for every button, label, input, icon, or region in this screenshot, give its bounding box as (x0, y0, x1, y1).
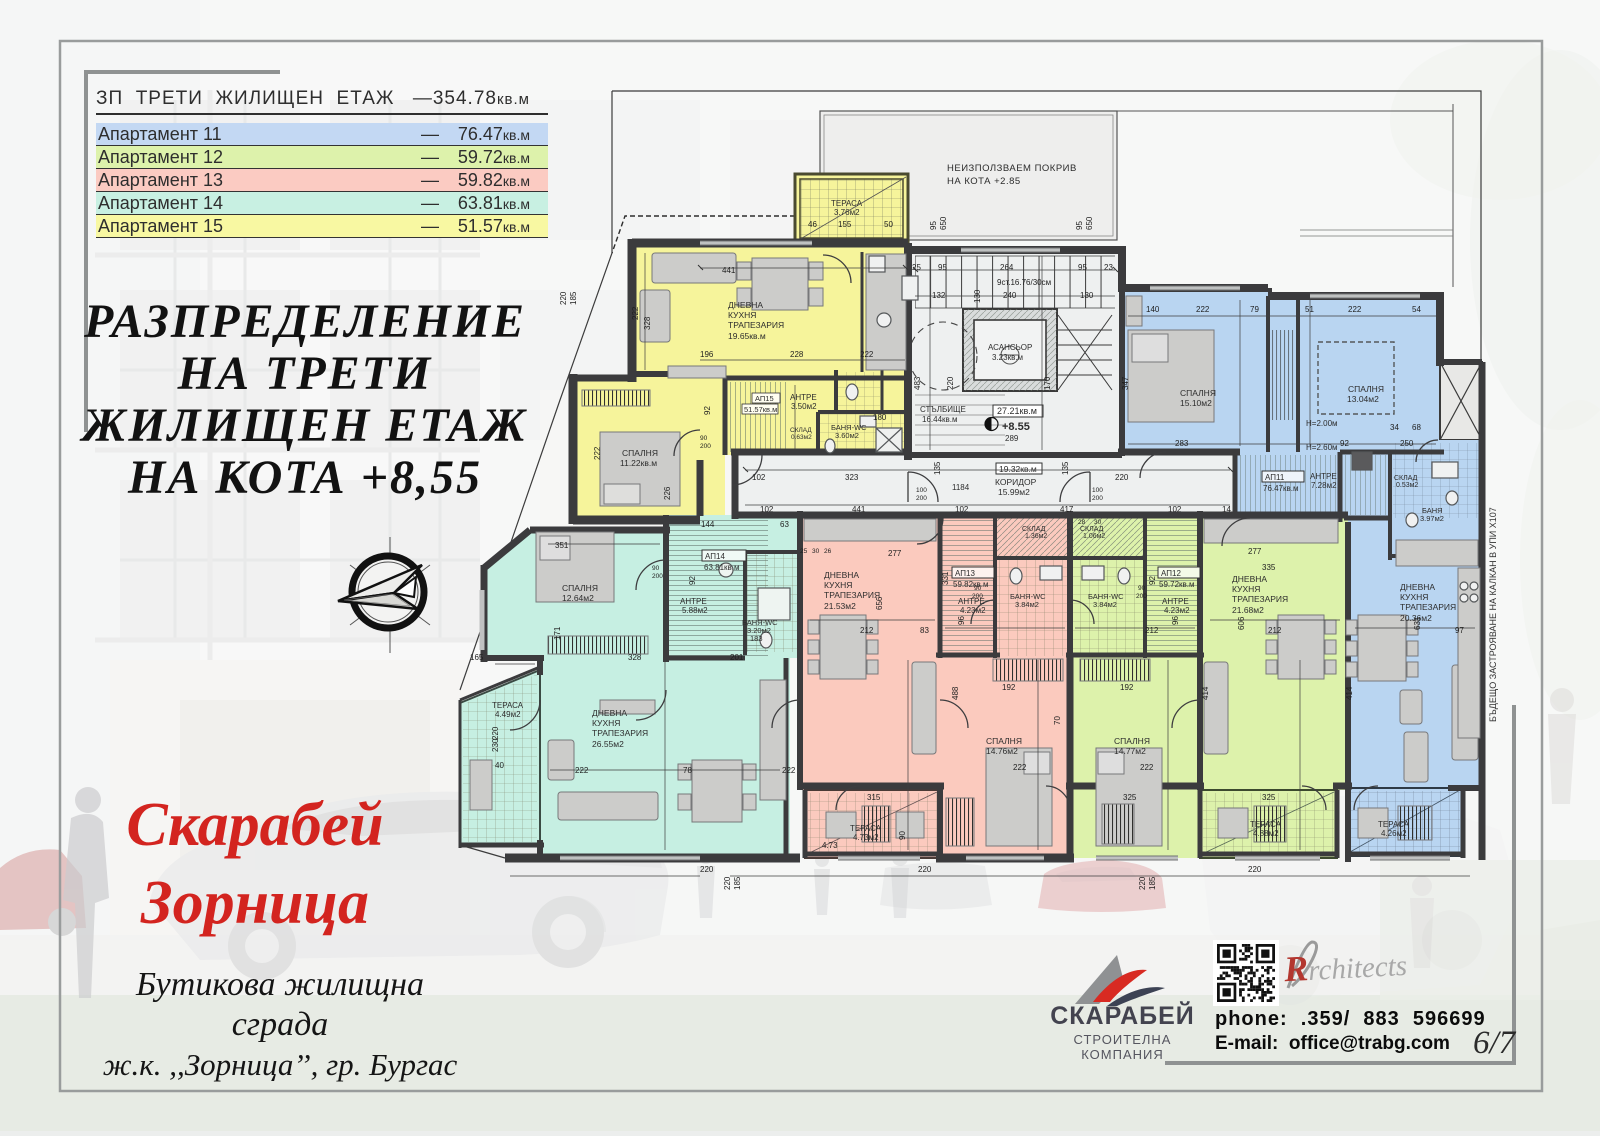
svg-text:АНТРЕ: АНТРЕ (790, 393, 817, 402)
svg-text:СПАЛНЯ: СПАЛНЯ (1180, 388, 1216, 398)
svg-text:ТРАПЕЗАРИЯ: ТРАПЕЗАРИЯ (824, 590, 880, 600)
svg-text:АНТРЕ: АНТРЕ (1310, 472, 1337, 481)
svg-text:325: 325 (1123, 793, 1137, 802)
svg-text:68: 68 (1412, 423, 1421, 432)
svg-text:АП15: АП15 (755, 394, 774, 403)
svg-text:1.36м2: 1.36м2 (1025, 533, 1047, 540)
svg-text:90: 90 (1138, 585, 1146, 592)
svg-text:АСАНСЬОР: АСАНСЬОР (988, 343, 1032, 352)
svg-text:46: 46 (808, 220, 817, 229)
svg-text:ДНЕВНА: ДНЕВНА (1400, 582, 1435, 592)
svg-text:4.73: 4.73 (822, 841, 838, 850)
svg-text:414: 414 (1201, 686, 1210, 700)
svg-text:СКЛАД: СКЛАД (1022, 526, 1046, 533)
svg-text:200: 200 (916, 495, 927, 502)
svg-text:50: 50 (884, 220, 893, 229)
svg-text:21.53м2: 21.53м2 (824, 601, 856, 611)
svg-text:+8.55: +8.55 (1002, 421, 1030, 433)
svg-text:H=2.00м: H=2.00м (1306, 419, 1338, 428)
svg-text:БЪДЕЩО ЗАСТРОЯВАНЕ НА КАЛКАН В: БЪДЕЩО ЗАСТРОЯВАНЕ НА КАЛКАН В УПИ X107 (1488, 507, 1498, 722)
svg-text:222: 222 (575, 766, 589, 775)
svg-text:1184: 1184 (952, 483, 970, 492)
svg-text:328: 328 (628, 653, 642, 662)
svg-text:100: 100 (916, 487, 927, 494)
svg-text:289: 289 (1005, 434, 1019, 443)
svg-text:220: 220 (918, 865, 932, 874)
svg-text:15.99м2: 15.99м2 (998, 487, 1030, 497)
svg-text:222: 222 (782, 766, 796, 775)
svg-text:КУХНЯ: КУХНЯ (592, 718, 620, 728)
svg-text:СТЪЛБИЩЕ: СТЪЛБИЩЕ (920, 405, 966, 414)
svg-text:3.84м2: 3.84м2 (1015, 600, 1039, 609)
svg-text:ТРАПЕЗАРИЯ: ТРАПЕЗАРИЯ (1400, 602, 1456, 612)
svg-text:102: 102 (1168, 505, 1182, 514)
svg-text:220: 220 (1248, 865, 1262, 874)
svg-text:347: 347 (1121, 376, 1130, 390)
svg-text:СПАЛНЯ: СПАЛНЯ (622, 448, 658, 458)
svg-text:171: 171 (553, 626, 562, 640)
svg-text:222: 222 (860, 350, 874, 359)
svg-text:ТЕРАСА: ТЕРАСА (492, 701, 524, 710)
svg-text:СПАЛНЯ: СПАЛНЯ (986, 736, 1022, 746)
svg-text:14.77м2: 14.77м2 (1114, 746, 1146, 756)
svg-text:92: 92 (703, 406, 712, 415)
svg-text:226: 226 (663, 486, 672, 500)
svg-text:222: 222 (1013, 763, 1027, 772)
svg-text:132: 132 (932, 291, 946, 300)
svg-text:222: 222 (593, 446, 602, 460)
svg-text:ТЕРАСА: ТЕРАСА (850, 824, 882, 833)
svg-text:325: 325 (1262, 793, 1276, 802)
svg-text:441: 441 (852, 505, 866, 514)
svg-text:185: 185 (569, 291, 578, 305)
svg-text:59.72кв.м: 59.72кв.м (1159, 580, 1195, 589)
svg-text:СКЛАД: СКЛАД (1080, 526, 1104, 533)
svg-text:76.47кв.м: 76.47кв.м (1263, 484, 1299, 493)
svg-text:1.06м2: 1.06м2 (1083, 533, 1105, 540)
svg-text:НЕИЗПОЛЗВАЕМ ПОКРИВ: НЕИЗПОЛЗВАЕМ ПОКРИВ (947, 163, 1077, 174)
svg-text:222: 222 (1196, 305, 1210, 314)
svg-text:220: 220 (491, 726, 500, 740)
svg-text:40: 40 (495, 761, 504, 770)
svg-text:650: 650 (1085, 216, 1094, 230)
svg-text:222: 222 (631, 306, 640, 320)
svg-text:488: 488 (951, 686, 960, 700)
svg-text:144: 144 (701, 520, 715, 529)
svg-text:КОРИДОР: КОРИДОР (995, 477, 1037, 487)
svg-text:92: 92 (1340, 439, 1349, 448)
svg-text:96: 96 (1171, 616, 1180, 625)
svg-text:СПАЛНЯ: СПАЛНЯ (562, 583, 598, 593)
svg-text:220: 220 (1138, 876, 1147, 890)
svg-text:27.21кв.м: 27.21кв.м (997, 406, 1037, 416)
svg-text:185: 185 (1148, 876, 1157, 890)
svg-text:26.55м2: 26.55м2 (592, 739, 624, 749)
svg-text:51: 51 (1305, 305, 1314, 314)
svg-text:220: 220 (723, 876, 732, 890)
svg-text:ТРАПЕЗАРИЯ: ТРАПЕЗАРИЯ (728, 320, 784, 330)
svg-text:79: 79 (1250, 305, 1259, 314)
svg-text:220: 220 (700, 865, 714, 874)
svg-text:140: 140 (1146, 305, 1160, 314)
svg-text:417: 417 (1060, 505, 1074, 514)
svg-text:83: 83 (920, 626, 929, 635)
svg-text:ДНЕВНА: ДНЕВНА (728, 300, 763, 310)
svg-text:30: 30 (1094, 519, 1102, 526)
svg-text:ДНЕВНА: ДНЕВНА (1232, 574, 1267, 584)
svg-text:4.73м2: 4.73м2 (853, 833, 879, 842)
svg-text:3.84м2: 3.84м2 (1093, 600, 1117, 609)
svg-text:30: 30 (812, 548, 820, 555)
svg-text:28: 28 (1078, 519, 1086, 526)
svg-text:4.26м2: 4.26м2 (1381, 829, 1407, 838)
svg-text:220: 220 (946, 376, 955, 390)
svg-text:15.10м2: 15.10м2 (1180, 398, 1212, 408)
svg-text:5.88м2: 5.88м2 (682, 606, 708, 615)
svg-text:201: 201 (730, 653, 744, 662)
svg-text:АП11: АП11 (1265, 473, 1285, 482)
svg-text:23: 23 (1104, 263, 1113, 272)
svg-text:25: 25 (800, 548, 808, 555)
svg-text:95: 95 (1078, 263, 1087, 272)
svg-text:230: 230 (491, 738, 500, 752)
svg-text:264: 264 (1000, 263, 1014, 272)
svg-text:102: 102 (752, 473, 766, 482)
svg-text:4.49м2: 4.49м2 (495, 710, 521, 719)
svg-text:212: 212 (1145, 626, 1159, 635)
svg-text:220: 220 (559, 291, 568, 305)
svg-text:90: 90 (700, 435, 708, 442)
svg-text:14.76м2: 14.76м2 (986, 746, 1018, 756)
svg-text:96: 96 (957, 616, 966, 625)
svg-text:283: 283 (1175, 439, 1189, 448)
svg-text:185: 185 (733, 876, 742, 890)
svg-text:63: 63 (780, 520, 789, 529)
svg-text:200: 200 (1092, 495, 1103, 502)
svg-text:26: 26 (824, 548, 832, 555)
svg-text:90: 90 (898, 831, 907, 840)
svg-text:656: 656 (875, 596, 884, 610)
svg-text:200: 200 (1136, 593, 1147, 600)
svg-text:ТРАПЕЗАРИЯ: ТРАПЕЗАРИЯ (1232, 594, 1288, 604)
svg-text:222: 222 (1140, 763, 1154, 772)
svg-text:351: 351 (555, 541, 569, 550)
svg-text:135: 135 (1061, 461, 1070, 475)
svg-text:4.23м2: 4.23м2 (960, 606, 986, 615)
svg-text:9ст.16.76/30см: 9ст.16.76/30см (997, 278, 1051, 287)
svg-text:11.22кв.м: 11.22кв.м (620, 458, 657, 468)
svg-text:ТЕРАСА: ТЕРАСА (831, 199, 863, 208)
svg-text:АП13: АП13 (955, 569, 975, 578)
svg-text:335: 335 (1262, 563, 1276, 572)
svg-text:КУХНЯ: КУХНЯ (728, 310, 756, 320)
svg-text:250: 250 (1400, 439, 1414, 448)
svg-text:54: 54 (1412, 305, 1421, 314)
svg-text:ТЕРАСА: ТЕРАСА (1250, 820, 1282, 829)
svg-text:63.81кв.м: 63.81кв.м (704, 563, 740, 572)
svg-text:АП12: АП12 (1161, 569, 1181, 578)
svg-text:90: 90 (974, 585, 982, 592)
svg-text:135: 135 (933, 461, 942, 475)
svg-text:483: 483 (913, 376, 922, 390)
svg-text:100: 100 (1092, 487, 1103, 494)
svg-text:0.53м2: 0.53м2 (1396, 482, 1418, 489)
svg-text:4.23м2: 4.23м2 (1164, 606, 1190, 615)
svg-text:441: 441 (722, 266, 736, 275)
svg-text:97: 97 (1455, 626, 1464, 635)
svg-text:102: 102 (760, 505, 774, 514)
svg-text:51.57кв.м: 51.57кв.м (744, 405, 777, 414)
svg-text:14: 14 (1222, 505, 1231, 514)
svg-text:130: 130 (973, 289, 982, 303)
svg-text:78: 78 (683, 766, 692, 775)
svg-text:212: 212 (1268, 626, 1282, 635)
svg-text:323: 323 (845, 473, 859, 482)
svg-text:90: 90 (652, 565, 660, 572)
svg-text:228: 228 (790, 350, 804, 359)
svg-text:СКЛАД: СКЛАД (790, 427, 812, 434)
svg-text:СПАЛНЯ: СПАЛНЯ (1114, 736, 1150, 746)
svg-text:315: 315 (867, 793, 881, 802)
svg-text:414: 414 (1345, 686, 1354, 700)
svg-text:200: 200 (700, 443, 711, 450)
svg-text:0.63м2: 0.63м2 (791, 434, 812, 441)
svg-text:34: 34 (1390, 423, 1399, 432)
svg-text:192: 192 (1002, 683, 1016, 692)
svg-text:16.44кв.м: 16.44кв.м (922, 415, 958, 424)
svg-text:192: 192 (1120, 683, 1134, 692)
svg-text:21.68м2: 21.68м2 (1232, 605, 1264, 615)
svg-text:328: 328 (643, 316, 652, 330)
svg-text:92: 92 (1148, 576, 1157, 585)
svg-text:4.88м2: 4.88м2 (1253, 829, 1279, 838)
svg-text:ТЕРАСА: ТЕРАСА (1378, 820, 1410, 829)
svg-text:95: 95 (1075, 221, 1084, 230)
svg-text:3.97м2: 3.97м2 (1420, 514, 1444, 523)
svg-text:КУХНЯ: КУХНЯ (1232, 584, 1260, 594)
svg-text:13.04м2: 13.04м2 (1347, 394, 1379, 404)
svg-text:КУХНЯ: КУХНЯ (824, 580, 852, 590)
svg-text:АНТРЕ: АНТРЕ (1162, 597, 1189, 606)
svg-text:НА КОТА +2.85: НА КОТА +2.85 (947, 176, 1021, 187)
svg-text:277: 277 (888, 549, 902, 558)
svg-text:3.23кв.м: 3.23кв.м (992, 353, 1023, 362)
svg-text:КУХНЯ: КУХНЯ (1400, 592, 1428, 602)
svg-text:ТРАПЕЗАРИЯ: ТРАПЕЗАРИЯ (592, 728, 648, 738)
svg-text:3.76м2: 3.76м2 (834, 208, 860, 217)
svg-text:200: 200 (972, 593, 983, 600)
svg-text:95: 95 (929, 221, 938, 230)
svg-text:АНТРЕ: АНТРЕ (680, 597, 707, 606)
svg-text:220: 220 (1115, 473, 1129, 482)
svg-text:25: 25 (912, 263, 921, 272)
svg-text:200: 200 (652, 573, 663, 580)
svg-text:102: 102 (955, 505, 969, 514)
svg-text:3.60м2: 3.60м2 (835, 431, 859, 440)
svg-text:155: 155 (838, 220, 852, 229)
svg-text:222: 222 (1348, 305, 1362, 314)
svg-text:606: 606 (1237, 616, 1246, 630)
svg-text:183: 183 (750, 634, 763, 643)
svg-text:19.65кв.м: 19.65кв.м (728, 331, 766, 341)
svg-text:130: 130 (1080, 291, 1094, 300)
svg-text:СПАЛНЯ: СПАЛНЯ (1348, 384, 1384, 394)
svg-text:95: 95 (938, 263, 947, 272)
svg-text:АП14: АП14 (705, 552, 725, 561)
svg-text:331: 331 (941, 571, 950, 585)
svg-text:СКЛАД: СКЛАД (1394, 475, 1418, 482)
svg-text:70: 70 (1053, 716, 1062, 725)
svg-text:196: 196 (700, 350, 714, 359)
svg-text:92: 92 (688, 576, 697, 585)
svg-text:165: 165 (470, 653, 484, 662)
svg-text:240: 240 (1003, 291, 1017, 300)
svg-text:59.82кв.м: 59.82кв.м (953, 580, 989, 589)
svg-text:ДНЕВНА: ДНЕВНА (824, 570, 859, 580)
svg-text:180: 180 (873, 413, 887, 422)
svg-text:ДНЕВНА: ДНЕВНА (592, 708, 627, 718)
svg-text:650: 650 (939, 216, 948, 230)
svg-text:212: 212 (860, 626, 874, 635)
svg-text:19.32кв.м: 19.32кв.м (999, 464, 1037, 474)
svg-text:631: 631 (1413, 616, 1422, 630)
svg-text:7.28м2: 7.28м2 (1311, 481, 1337, 490)
svg-text:277: 277 (1248, 547, 1262, 556)
svg-text:12.64м2: 12.64м2 (562, 593, 594, 603)
svg-text:170: 170 (1043, 376, 1052, 390)
